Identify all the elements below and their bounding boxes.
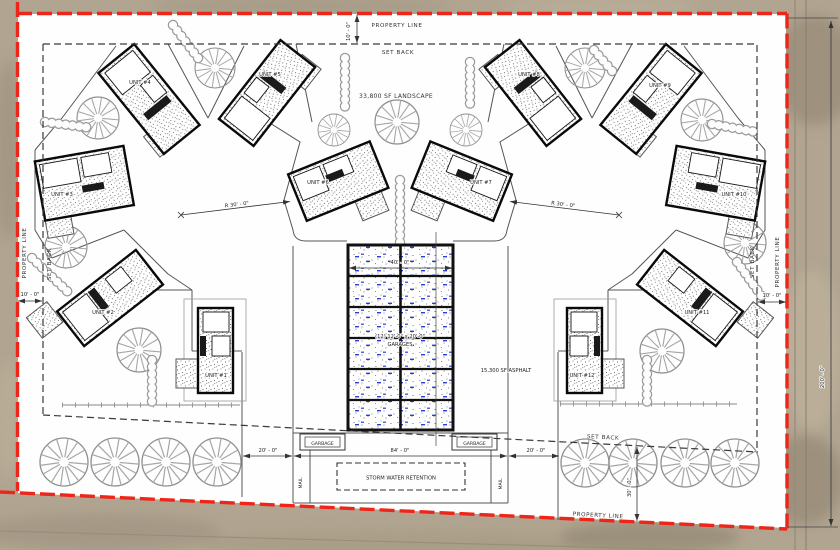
setback-label-top: SET BACK: [382, 50, 414, 56]
dim-top-offset: 10' - 0": [346, 22, 352, 41]
dim-court-width: 84' - 0": [391, 448, 410, 454]
garbage-label: GARBAGE: [311, 441, 334, 447]
unit-8-label: UNIT #8: [518, 72, 540, 78]
setback-label-left: SET BACK: [47, 248, 53, 280]
mail-label-left: MAIL: [298, 477, 304, 488]
dim-rear-offset: 30' - 0": [627, 478, 633, 497]
dim-right-offset: 10' - 0": [763, 293, 782, 299]
site-plan-canvas: GARBAGE GARBAGE STORM WATER RETENTION MA…: [0, 0, 840, 550]
unit-11-label: UNIT #11: [685, 310, 710, 316]
dim-left-offset: 10' - 0": [21, 292, 40, 298]
garbage-label: GARBAGE: [463, 441, 486, 447]
dim-apron-left: 20' - 0": [259, 448, 278, 454]
unit-4-label: UNIT #4: [129, 80, 151, 86]
unit-6-label: UNIT #6: [307, 180, 329, 186]
landscape-area-label: 33,800 SF LANDSCAPE: [359, 93, 433, 100]
unit-7-label: UNIT #7: [470, 180, 492, 186]
garbage-enclosure-left: GARBAGE: [300, 434, 345, 450]
garages-note-line1: (12) 12'-0" x 20'-0": [375, 334, 425, 340]
property-line-label-top: PROPERTY LINE: [372, 23, 423, 29]
setback-label-right: SET BACK: [750, 246, 756, 278]
dim-apron-right: 20' - 0": [527, 448, 546, 454]
asphalt-area-label: 15,300 SF ASPHALT: [481, 368, 532, 374]
property-line-label-right: PROPERTY LINE: [775, 237, 781, 288]
dim-east-depth: 200' - 0": [820, 366, 826, 388]
bush-row: [45, 122, 92, 128]
site-plan-drawing: GARBAGE GARBAGE STORM WATER RETENTION MA…: [0, 0, 840, 550]
dim-garage-width: 40' - 0": [391, 260, 410, 266]
storm-water-label: STORM WATER RETENTION: [366, 476, 436, 482]
unit-9-label: UNIT #9: [649, 83, 671, 89]
property-line-label-left: PROPERTY LINE: [22, 228, 28, 279]
unit-5-label: UNIT #5: [259, 72, 281, 78]
unit-3-label: UNIT #3: [51, 192, 73, 198]
garages-note-line2: GARAGES: [387, 342, 412, 348]
garbage-enclosure-right: GARBAGE: [452, 434, 497, 450]
unit-1-label: UNIT #1: [205, 373, 227, 379]
unit-12-label: UNIT #12: [570, 373, 595, 379]
mail-label-right: MAIL: [498, 478, 504, 489]
unit-2-label: UNIT #2: [92, 310, 114, 316]
unit-10-label: UNIT #10: [722, 192, 747, 198]
